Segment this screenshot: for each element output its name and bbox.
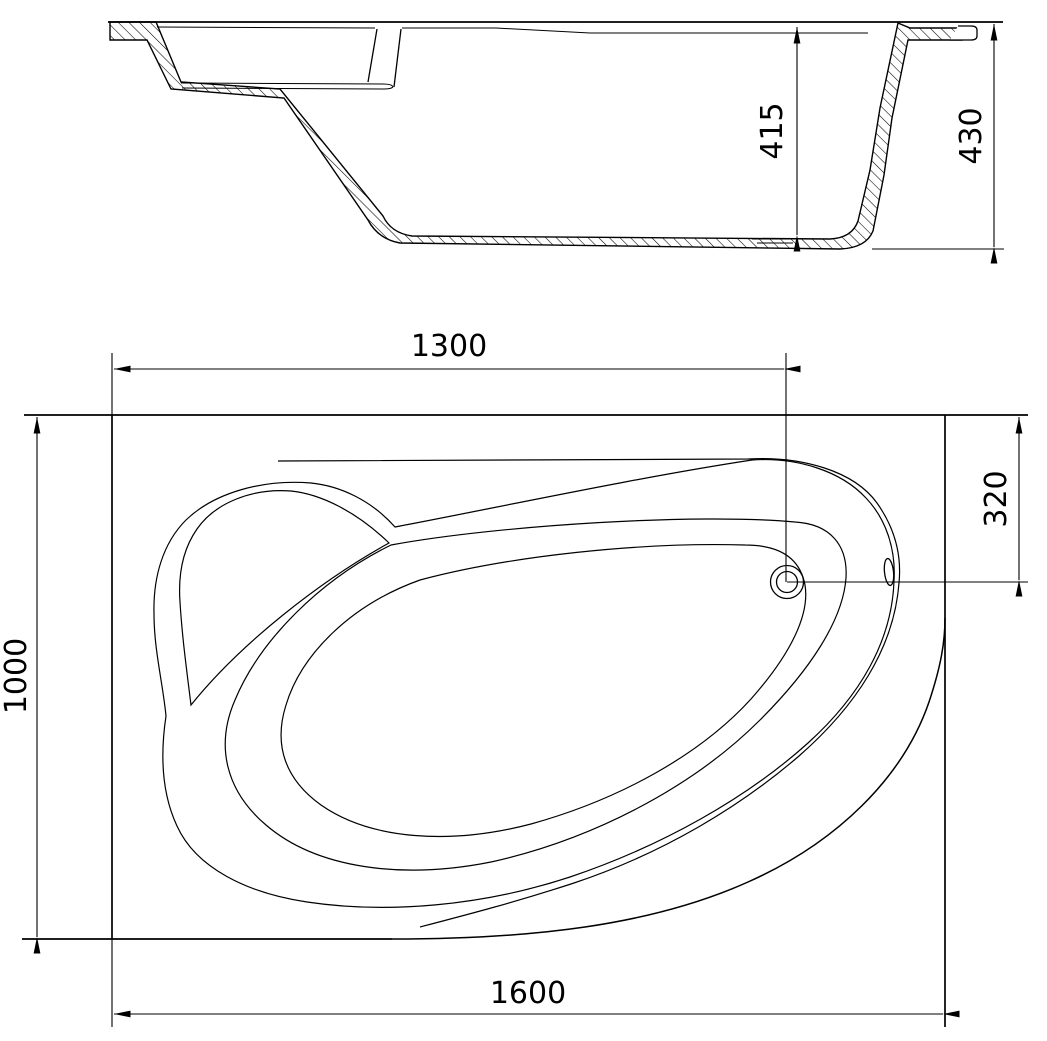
drawing-sheet: 415 430	[0, 0, 1047, 1041]
apron-outer-curve	[392, 618, 945, 939]
plan-view	[22, 353, 1028, 1027]
basin-contour-curve	[225, 519, 846, 870]
label-inner-depth: 415	[755, 102, 790, 159]
basin-floor-curve	[281, 545, 806, 837]
label-length-to-drain: 1300	[411, 329, 487, 364]
label-overall-length: 1600	[490, 976, 566, 1011]
seat-edge-front	[368, 29, 377, 82]
deck-edge-curve	[278, 459, 900, 927]
basin-opening-curve	[154, 460, 894, 908]
tub-shell-section	[110, 22, 962, 249]
side-view-cross-section	[108, 22, 1004, 249]
label-width-to-drain: 320	[979, 470, 1014, 527]
headrest-crescent	[180, 491, 389, 705]
inner-rim-left	[157, 27, 375, 28]
inner-rim-right	[402, 28, 868, 33]
label-overall-width: 1000	[0, 638, 34, 714]
bathtub-technical-drawing: 415 430	[0, 0, 1047, 1041]
label-overall-height: 430	[954, 107, 989, 164]
seat-edge-back	[394, 29, 401, 87]
